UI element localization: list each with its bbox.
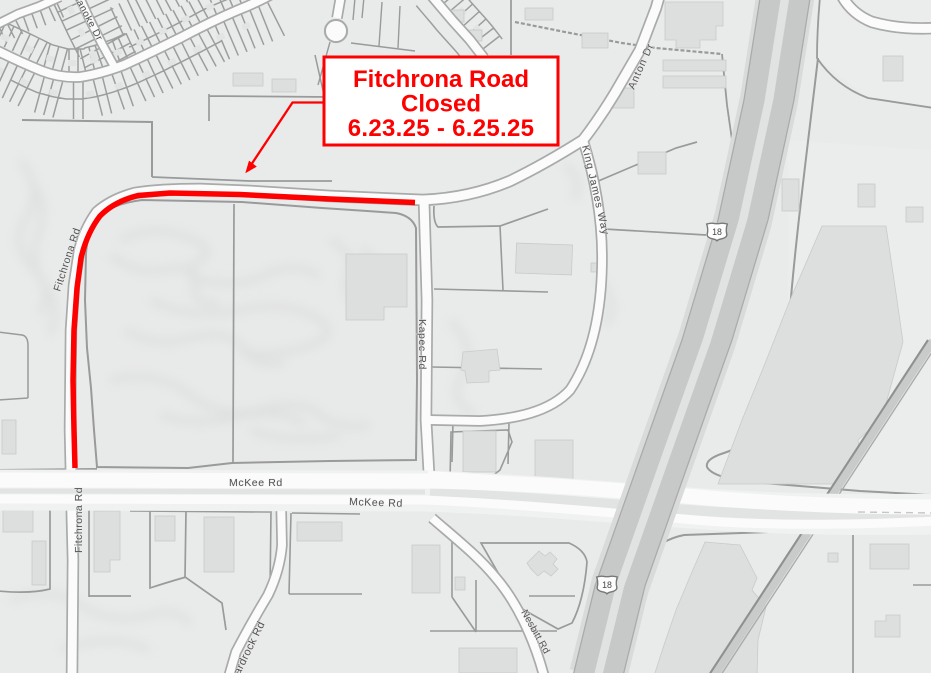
svg-text:Closed: Closed [401, 91, 481, 118]
svg-text:Fitchrona Road: Fitchrona Road [353, 66, 529, 93]
svg-text:McKee Rd: McKee Rd [229, 477, 283, 489]
svg-text:McKee Rd: McKee Rd [349, 496, 403, 510]
svg-text:18: 18 [712, 227, 722, 237]
svg-text:Kapec Rd: Kapec Rd [416, 319, 428, 370]
svg-text:6.23.25 - 6.25.25: 6.23.25 - 6.25.25 [348, 115, 535, 142]
svg-text:18: 18 [602, 580, 612, 590]
svg-text:Fitchrona Rd: Fitchrona Rd [73, 487, 85, 553]
